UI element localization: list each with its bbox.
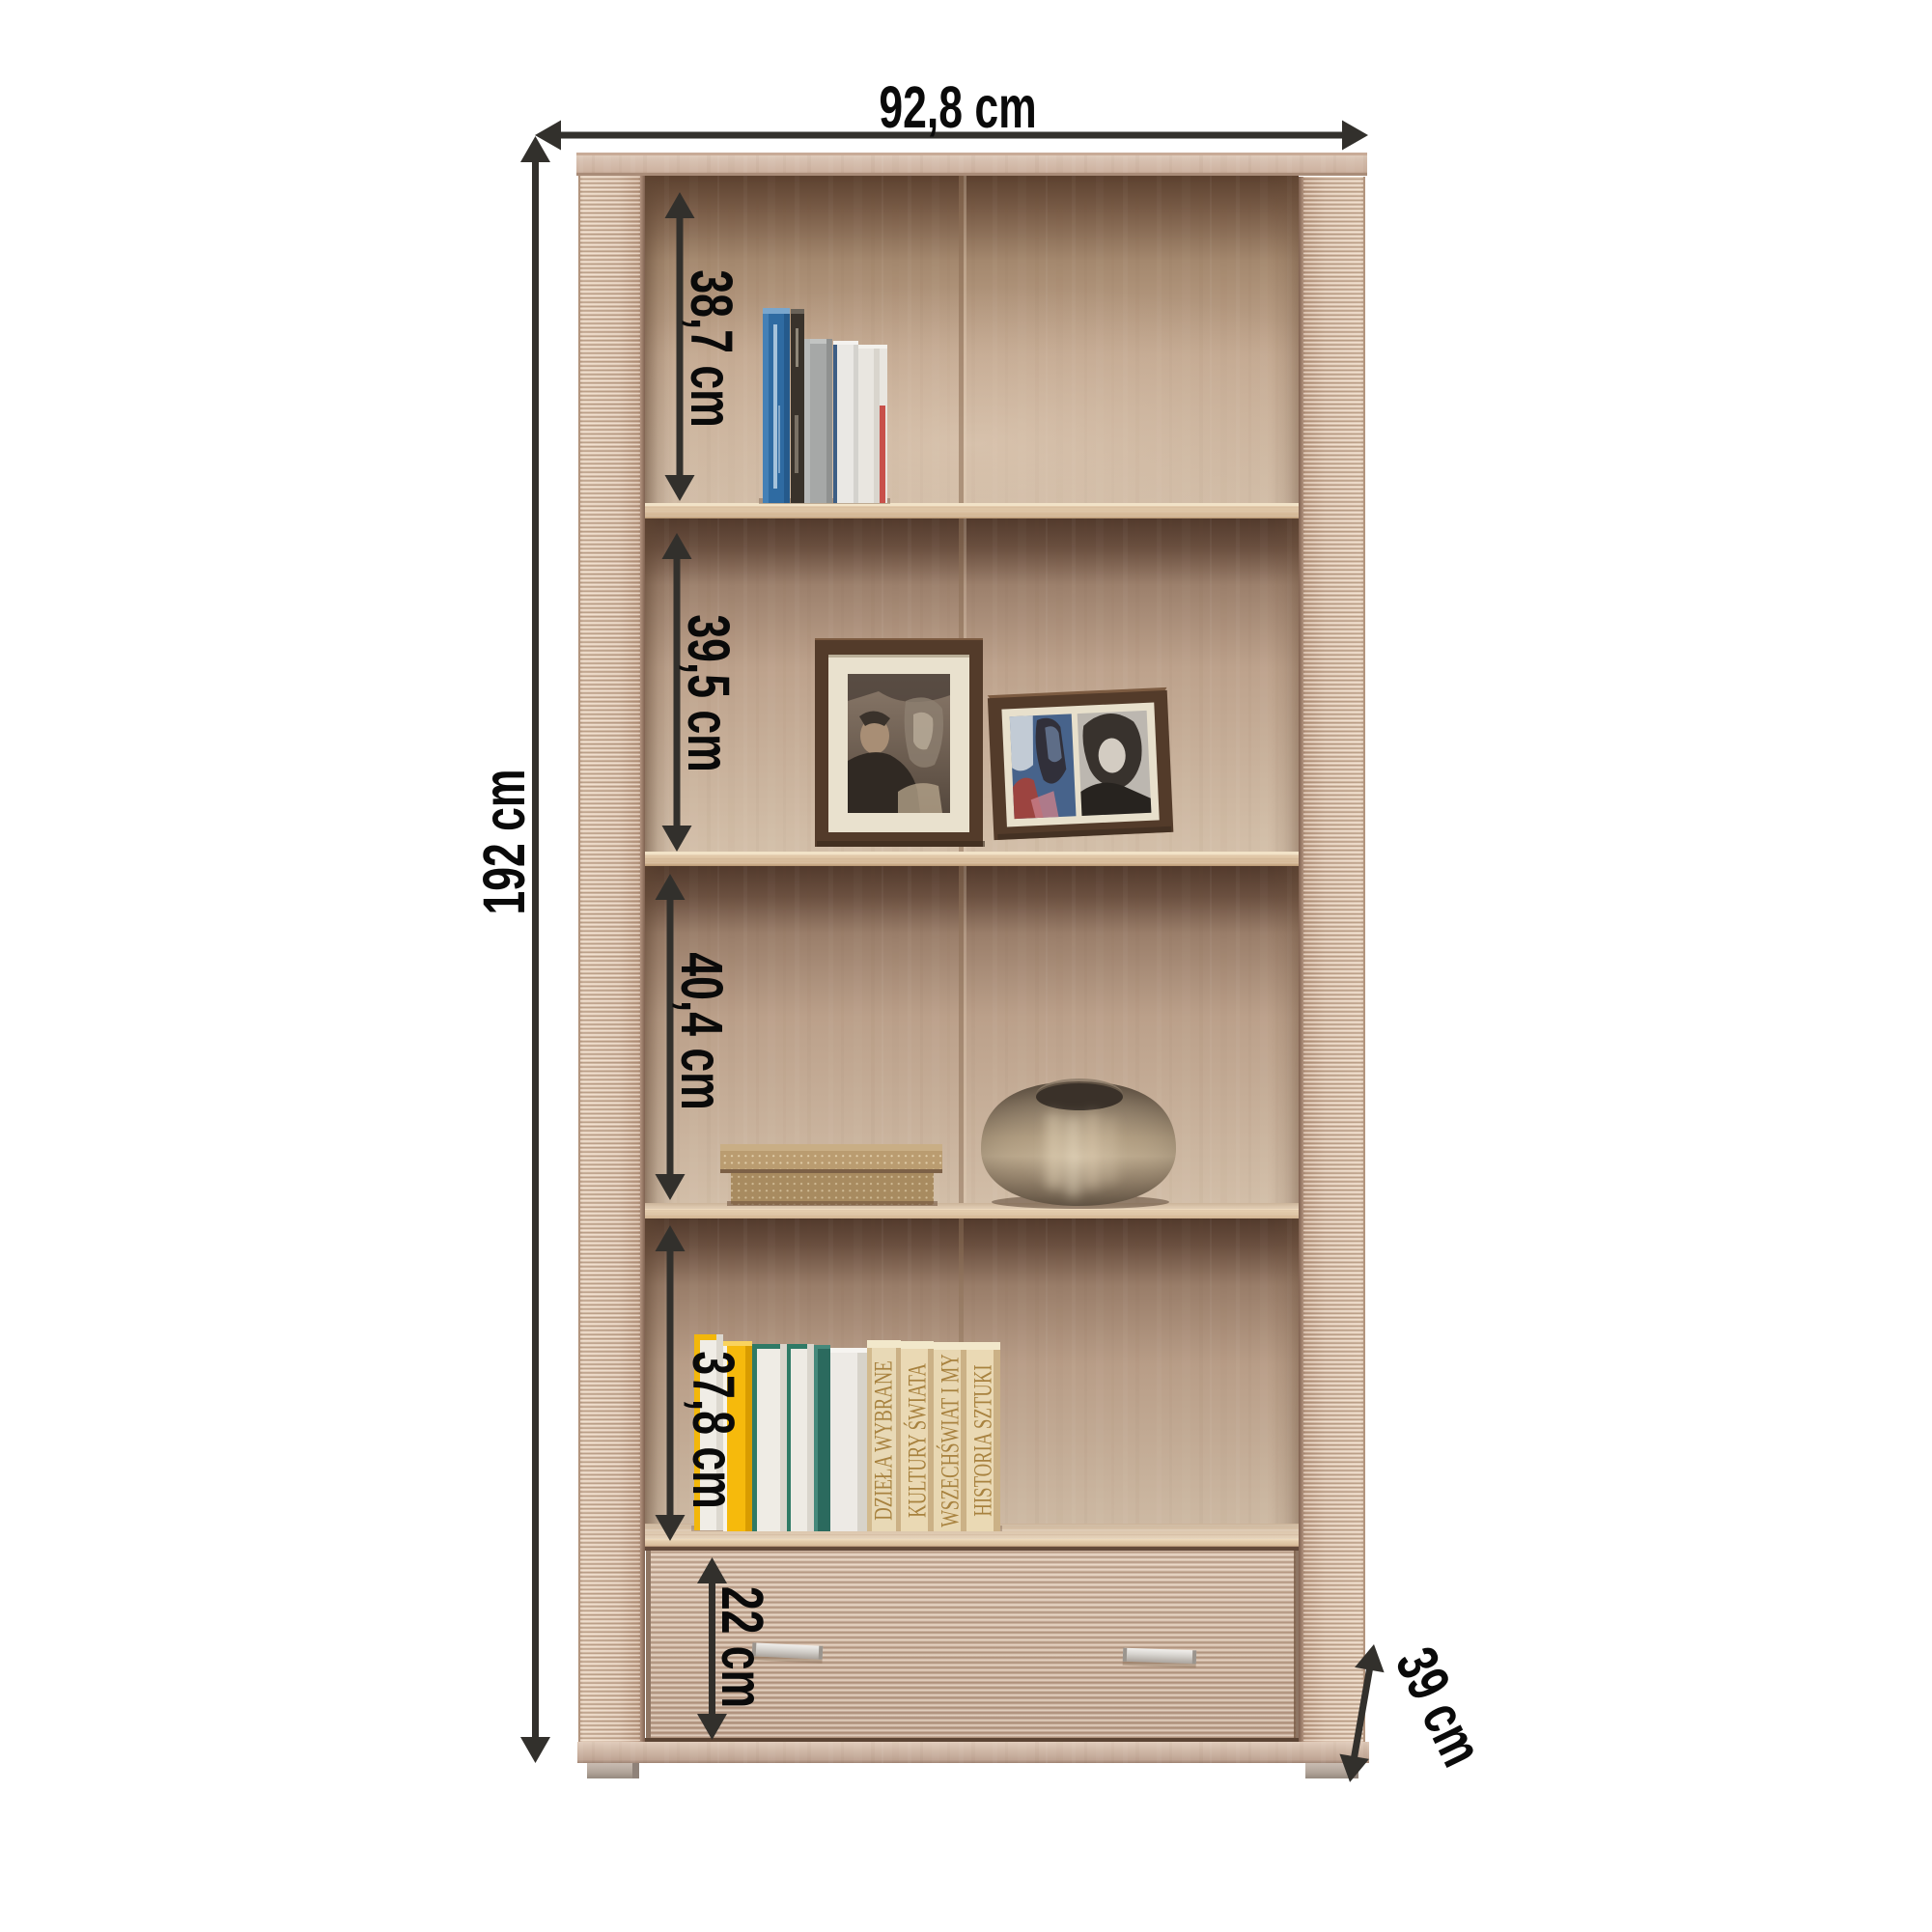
svg-text:HISTORIA SZTUKI: HISTORIA SZTUKI [969,1364,997,1516]
svg-text:92,8 cm: 92,8 cm [879,75,1036,140]
svg-text:DZIEŁA WYBRANE: DZIEŁA WYBRANE [870,1360,898,1520]
svg-text:40,4 cm: 40,4 cm [668,952,733,1109]
svg-text:38,7 cm: 38,7 cm [678,269,742,427]
svg-text:KULTURY ŚWIATA: KULTURY ŚWIATA [903,1363,932,1518]
svg-text:37,8 cm: 37,8 cm [680,1351,744,1508]
svg-text:192 cm: 192 cm [472,769,537,914]
svg-text:39,5 cm: 39,5 cm [675,614,740,771]
svg-text:22 cm: 22 cm [709,1586,773,1708]
svg-text:WSZECHŚWIAT I MY: WSZECHŚWIAT I MY [936,1354,965,1526]
